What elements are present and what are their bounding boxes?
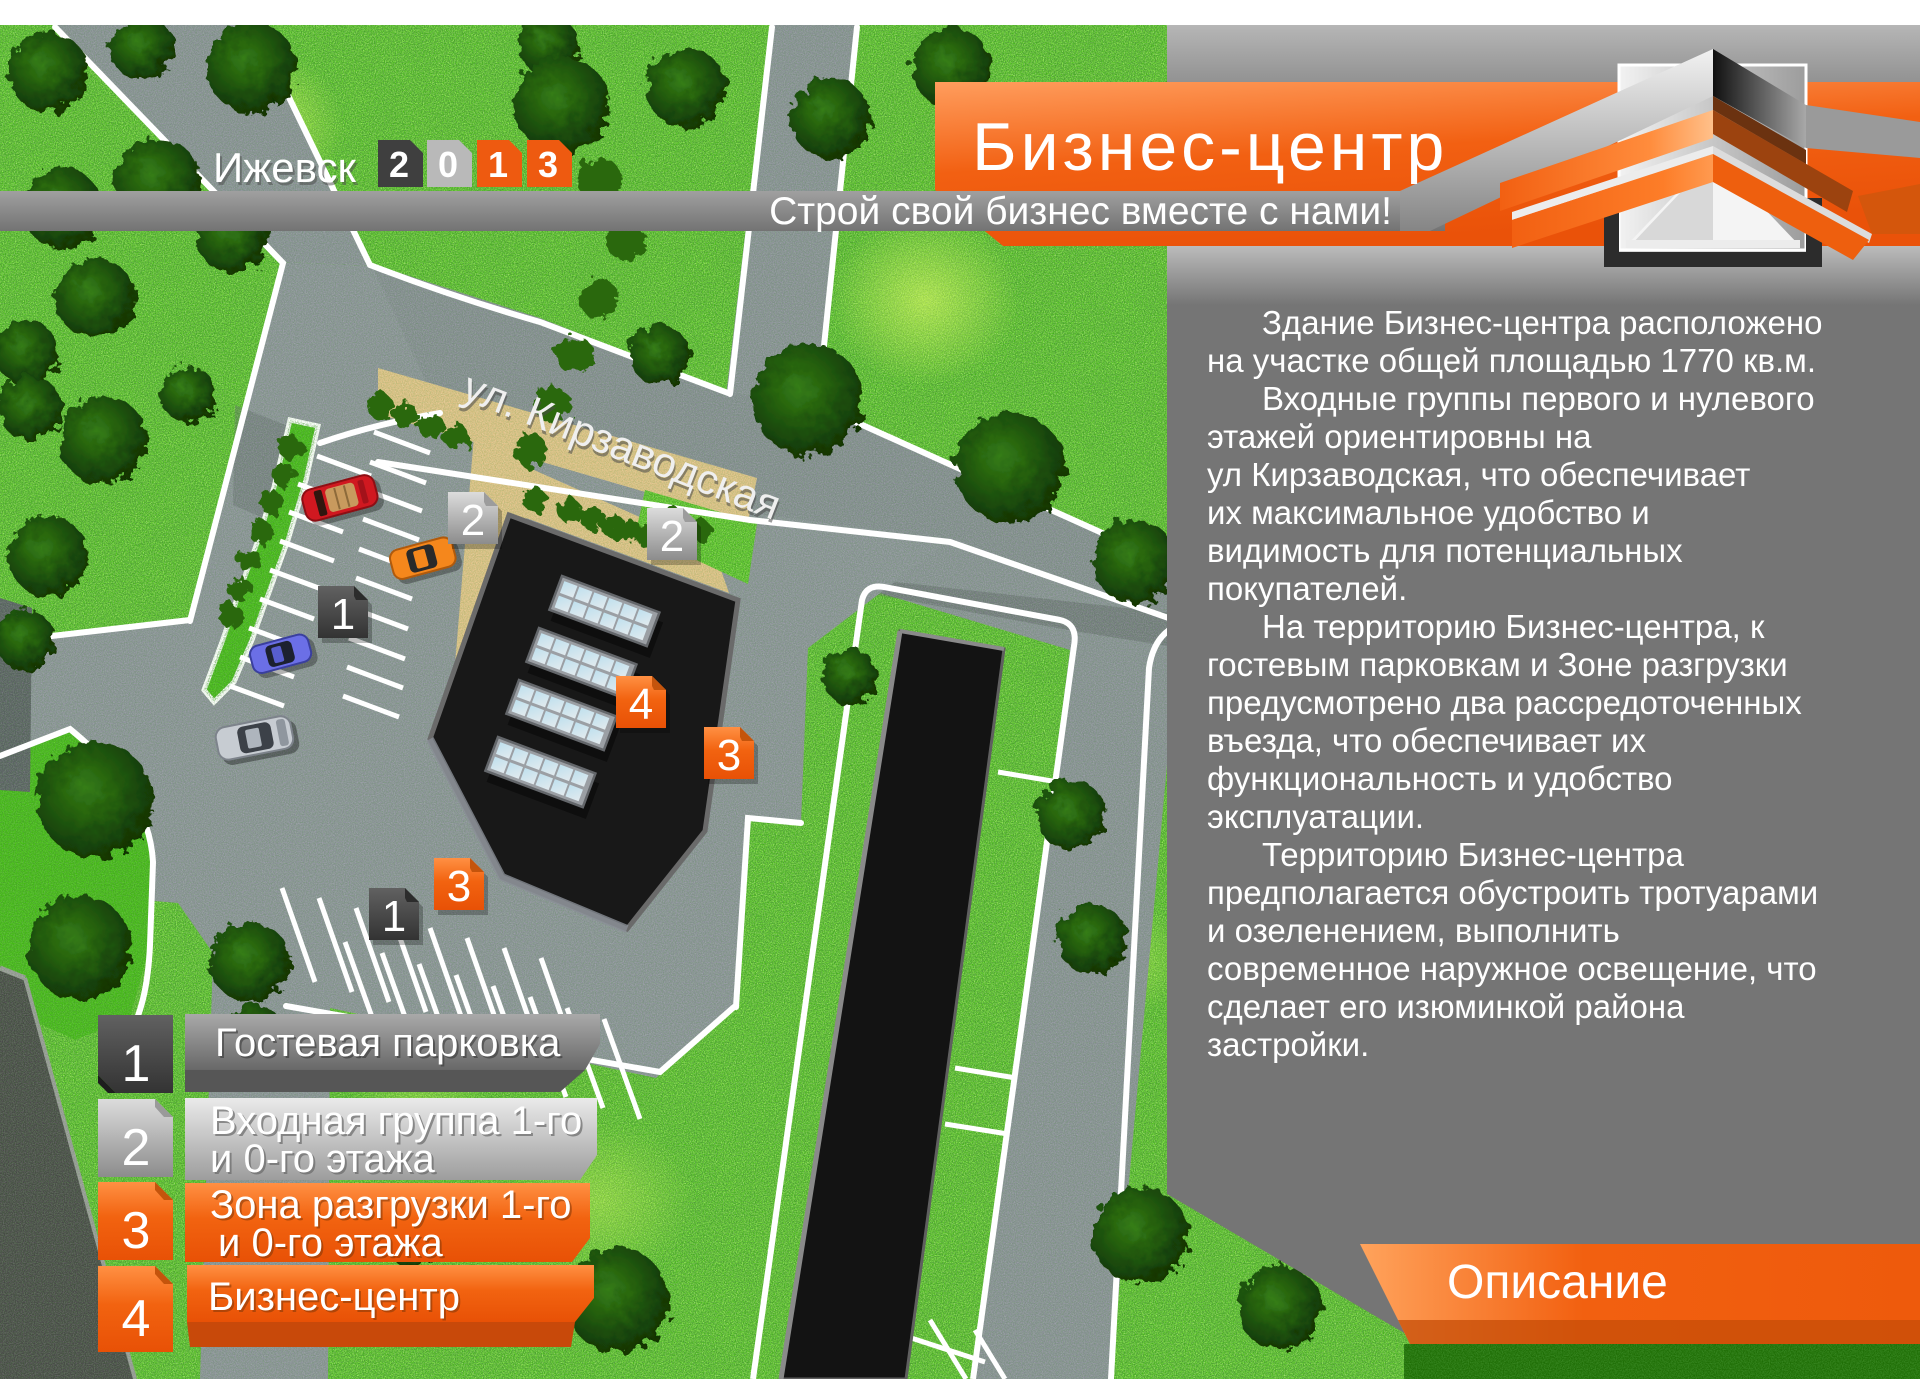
- svg-text:3: 3: [538, 144, 558, 185]
- svg-text:и 0-го этажа: и 0-го этажа: [218, 1221, 444, 1265]
- svg-text:современное наружное освещение: современное наружное освещение, что: [1207, 950, 1817, 987]
- svg-text:4: 4: [629, 680, 653, 729]
- svg-text:предполагается обустроить трот: предполагается обустроить тротуарами: [1207, 874, 1818, 911]
- svg-text:видимость для потенциальных: видимость для потенциальных: [1207, 532, 1683, 569]
- svg-text:и 0-го этажа: и 0-го этажа: [210, 1137, 436, 1181]
- svg-text:ул Кирзаводская, что обеспечив: ул Кирзаводская, что обеспечивает: [1207, 456, 1750, 493]
- svg-text:и озеленением, выполнить: и озеленением, выполнить: [1207, 912, 1620, 949]
- svg-text:2: 2: [461, 496, 485, 545]
- svg-text:гостевым парковкам и Зоне разг: гостевым парковкам и Зоне разгрузки: [1207, 646, 1788, 683]
- svg-text:1: 1: [122, 1035, 151, 1093]
- svg-text:4: 4: [122, 1290, 151, 1348]
- svg-text:Описание: Описание: [1447, 1256, 1668, 1309]
- svg-text:Бизнес-центр: Бизнес-центр: [208, 1275, 460, 1319]
- svg-text:Гостевая парковка: Гостевая парковка: [215, 1021, 561, 1065]
- svg-text:Бизнес-центр: Бизнес-центр: [972, 109, 1448, 185]
- svg-text:2: 2: [389, 144, 409, 185]
- svg-text:2: 2: [122, 1119, 151, 1177]
- svg-text:эксплуатации.: эксплуатации.: [1207, 798, 1424, 835]
- svg-text:На территорию Бизнес-центра, к: На территорию Бизнес-центра, к: [1262, 608, 1765, 645]
- svg-text:въезда, что обеспечивает их: въезда, что обеспечивает их: [1207, 722, 1646, 759]
- svg-text:Строй свой бизнес вместе с нам: Строй свой бизнес вместе с нами!: [769, 190, 1392, 233]
- svg-text:Входные группы первого и нулев: Входные группы первого и нулевого: [1262, 380, 1815, 417]
- svg-text:3: 3: [717, 731, 741, 780]
- svg-text:на участке общей площадью 1770: на участке общей площадью 1770 кв.м.: [1207, 342, 1816, 379]
- svg-text:их максимальное удобство и: их максимальное удобство и: [1207, 494, 1650, 531]
- svg-text:этажей ориентировны на: этажей ориентировны на: [1207, 418, 1592, 455]
- svg-text:Территорию Бизнес-центра: Территорию Бизнес-центра: [1262, 836, 1684, 873]
- svg-text:предусмотрено два рассредоточе: предусмотрено два рассредоточенных: [1207, 684, 1802, 721]
- svg-text:застройки.: застройки.: [1207, 1026, 1369, 1063]
- svg-text:покупателей.: покупателей.: [1207, 570, 1407, 607]
- svg-text:1: 1: [488, 144, 508, 185]
- svg-text:2: 2: [660, 512, 684, 561]
- svg-text:сделает его изюминкой района: сделает его изюминкой района: [1207, 988, 1685, 1025]
- svg-text:Ижевск: Ижевск: [213, 144, 356, 191]
- svg-text:3: 3: [122, 1202, 151, 1260]
- svg-text:1: 1: [331, 590, 355, 639]
- svg-text:3: 3: [447, 862, 471, 911]
- svg-text:функциональность и удобство: функциональность и удобство: [1207, 760, 1672, 797]
- svg-text:Здание Бизнес-центра расположе: Здание Бизнес-центра расположено: [1262, 304, 1822, 341]
- svg-text:0: 0: [438, 144, 458, 185]
- svg-text:1: 1: [382, 892, 406, 941]
